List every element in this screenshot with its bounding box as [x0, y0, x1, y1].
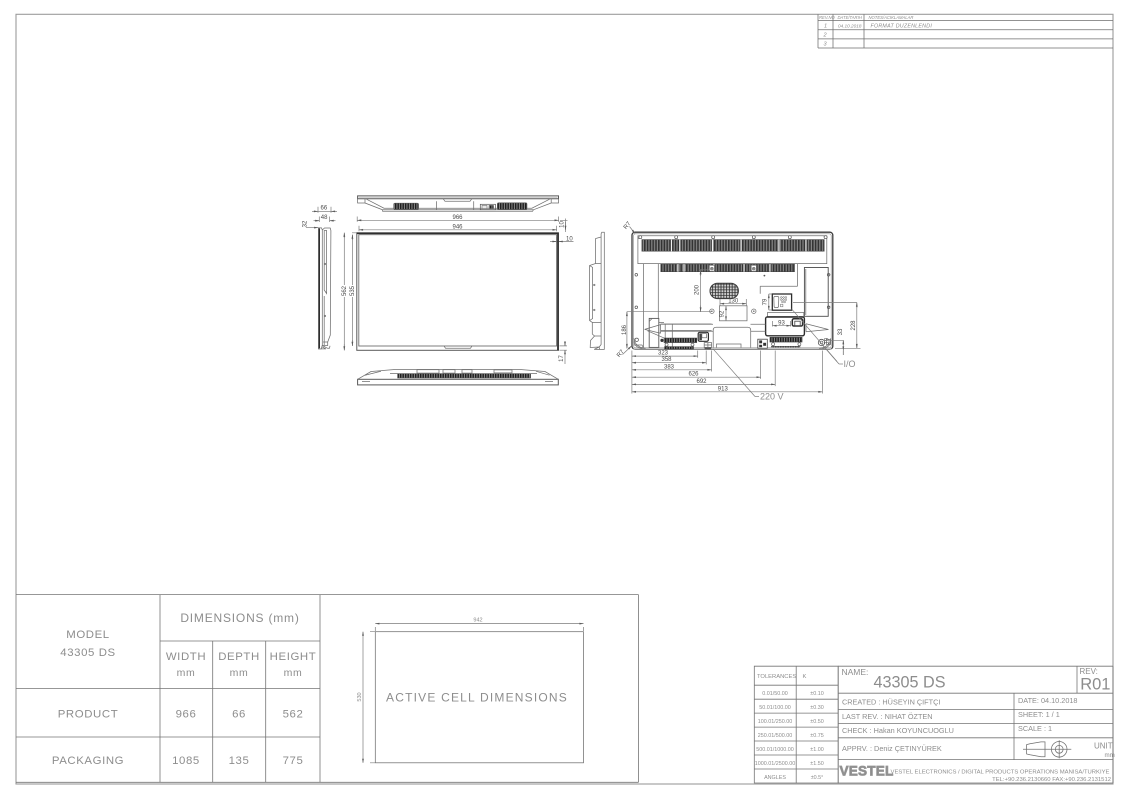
svg-text:66: 66: [232, 709, 246, 721]
svg-text:CREATED : HÜSEYIN ÇIFTÇI: CREATED : HÜSEYIN ÇIFTÇI: [842, 698, 940, 707]
svg-text:966: 966: [176, 709, 197, 721]
svg-text:UNIT: UNIT: [1094, 742, 1113, 751]
svg-text:19: 19: [824, 337, 830, 344]
svg-text:33: 33: [838, 328, 844, 335]
svg-text:93: 93: [778, 320, 785, 326]
svg-text:50.01/100.00: 50.01/100.00: [759, 705, 790, 711]
svg-text:mm: mm: [177, 667, 196, 679]
svg-text:04.10.2018: 04.10.2018: [838, 23, 862, 28]
svg-text:PRODUCT: PRODUCT: [58, 709, 119, 721]
svg-text:130: 130: [728, 298, 739, 304]
svg-text:228: 228: [851, 320, 857, 331]
svg-text:±0.5°: ±0.5°: [811, 775, 824, 781]
svg-text:966: 966: [452, 215, 463, 221]
svg-text:mm: mm: [230, 667, 249, 679]
svg-text:DEPTH: DEPTH: [218, 651, 260, 663]
svg-text:ANGLES: ANGLES: [764, 775, 786, 781]
svg-text:ACTIVE CELL DIMENSIONS: ACTIVE CELL DIMENSIONS: [386, 691, 568, 705]
svg-text:TOLERANCES: TOLERANCES: [757, 674, 796, 680]
svg-text:946: 946: [452, 225, 463, 231]
svg-text:79: 79: [763, 298, 769, 305]
svg-text:APPRV. : Deniz ÇETINYÜREK: APPRV. : Deniz ÇETINYÜREK: [842, 744, 942, 753]
svg-text:43305 DS: 43305 DS: [874, 674, 946, 692]
svg-text:mm: mm: [1105, 752, 1115, 759]
svg-text:±1.50: ±1.50: [810, 761, 823, 767]
svg-text:323: 323: [658, 351, 669, 357]
svg-text:±0.30: ±0.30: [810, 705, 823, 711]
svg-text:LAST REV. : NIHAT ÖZTEN: LAST REV. : NIHAT ÖZTEN: [842, 712, 933, 721]
svg-text:SHEET: 1 / 1: SHEET: 1 / 1: [1018, 710, 1060, 719]
svg-text:43305 DS: 43305 DS: [60, 647, 115, 659]
svg-text:942: 942: [473, 618, 482, 624]
svg-text:92: 92: [720, 310, 726, 317]
svg-text:32: 32: [303, 220, 309, 227]
svg-text:DATE/TARIH: DATE/TARIH: [838, 15, 863, 20]
svg-text:NAME:: NAME:: [842, 667, 869, 677]
svg-text:VESTEL ELECTRONICS / DIGITAL P: VESTEL ELECTRONICS / DIGITAL PRODUCTS OP…: [891, 770, 1110, 776]
svg-text:DIMENSIONS (mm): DIMENSIONS (mm): [180, 611, 299, 625]
svg-text:±0.10: ±0.10: [810, 691, 823, 697]
svg-text:FORMAT DUZENLENDI: FORMAT DUZENLENDI: [871, 24, 933, 30]
svg-text:10: 10: [560, 221, 566, 228]
svg-text:REV.NO: REV.NO: [819, 15, 835, 20]
svg-text:530: 530: [357, 692, 363, 701]
svg-text:±1.00: ±1.00: [810, 747, 823, 753]
svg-text:17: 17: [559, 355, 565, 362]
svg-text:SCALE : 1: SCALE : 1: [1018, 724, 1052, 733]
svg-text:66: 66: [321, 206, 328, 212]
svg-text:250.01/500.00: 250.01/500.00: [758, 733, 792, 739]
svg-text:K: K: [803, 674, 807, 680]
svg-text:913: 913: [718, 386, 729, 392]
svg-text:383: 383: [664, 364, 675, 370]
svg-text:WIDTH: WIDTH: [166, 651, 206, 663]
svg-text:CHECK : Hakan KOYUNCUOGLU: CHECK : Hakan KOYUNCUOGLU: [842, 726, 954, 735]
svg-text:775: 775: [283, 755, 304, 767]
svg-text:±0.50: ±0.50: [810, 719, 823, 725]
svg-text:1085: 1085: [172, 755, 200, 767]
svg-text:220 V: 220 V: [760, 392, 784, 402]
svg-text:1000.01/2500.00: 1000.01/2500.00: [755, 761, 795, 767]
svg-text:1: 1: [824, 23, 827, 29]
svg-text:mm: mm: [284, 667, 303, 679]
svg-text:358: 358: [662, 357, 673, 363]
svg-text:HEIGHT: HEIGHT: [270, 651, 317, 663]
svg-text:VESTEL: VESTEL: [840, 763, 894, 779]
svg-text:562: 562: [342, 285, 348, 296]
svg-text:48: 48: [321, 215, 328, 221]
svg-text:R01: R01: [1080, 676, 1110, 694]
svg-text:0.01/50.00: 0.01/50.00: [762, 691, 787, 697]
svg-text:562: 562: [283, 709, 304, 721]
svg-text:I/O: I/O: [844, 359, 856, 369]
svg-text:186: 186: [622, 324, 628, 335]
svg-text:±0.75: ±0.75: [810, 733, 823, 739]
svg-text:692: 692: [697, 379, 708, 385]
svg-text:10: 10: [566, 236, 573, 242]
svg-text:MODEL: MODEL: [66, 629, 110, 641]
svg-text:DATE: 04.10.2018: DATE: 04.10.2018: [1018, 696, 1078, 705]
svg-text:TEL:+90.236.2130660 FAX:+90.23: TEL:+90.236.2130660 FAX:+90.236.2131512: [992, 777, 1111, 783]
svg-text:626: 626: [689, 372, 700, 378]
svg-text:200: 200: [695, 284, 701, 295]
svg-text:500.01/1000.00: 500.01/1000.00: [756, 747, 793, 753]
svg-text:135: 135: [229, 755, 250, 767]
svg-text:NOTES/ACIKLAMALAR: NOTES/ACIKLAMALAR: [869, 15, 914, 20]
svg-text:PACKAGING: PACKAGING: [52, 755, 124, 767]
svg-text:535: 535: [350, 285, 356, 296]
svg-text:100.01/250.00: 100.01/250.00: [758, 719, 792, 725]
